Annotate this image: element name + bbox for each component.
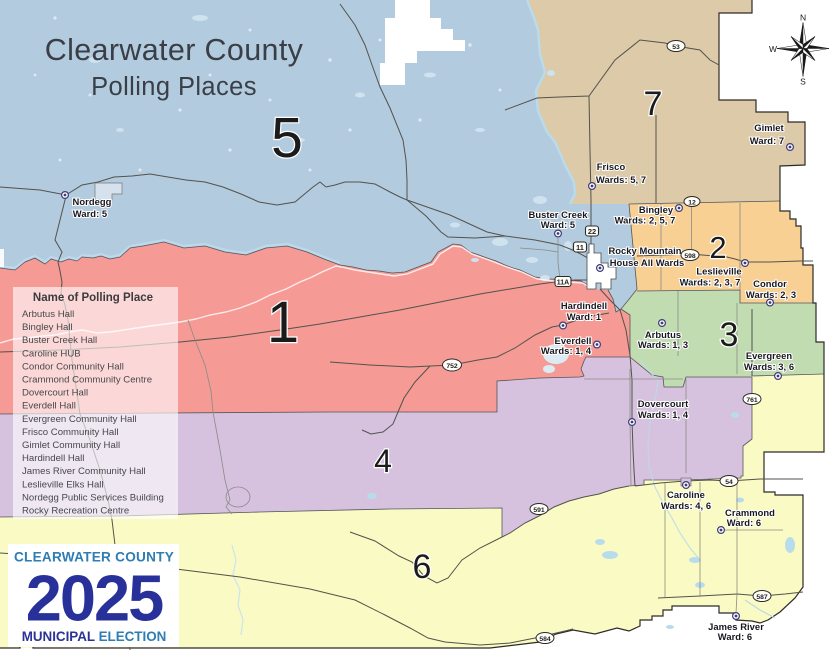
svg-text:11A: 11A: [557, 279, 569, 286]
svg-text:Nordegg: Nordegg: [73, 196, 112, 207]
svg-text:Wards: 2, 3: Wards: 2, 3: [746, 289, 796, 300]
svg-text:Leslieville Elks Hall: Leslieville Elks Hall: [22, 479, 104, 490]
svg-text:Gimlet: Gimlet: [754, 122, 783, 133]
svg-text:Ward: 6: Ward: 6: [718, 631, 752, 642]
svg-text:11: 11: [576, 243, 584, 252]
svg-text:Wards: 4, 6: Wards: 4, 6: [661, 500, 711, 511]
svg-text:22: 22: [588, 227, 596, 236]
svg-text:Evergreen Community Hall: Evergreen Community Hall: [22, 414, 137, 425]
svg-text:Frisco: Frisco: [597, 161, 626, 172]
svg-text:Wards: 1, 4: Wards: 1, 4: [638, 409, 689, 420]
svg-text:Bingley Hall: Bingley Hall: [22, 322, 73, 333]
svg-text:2025: 2025: [26, 562, 163, 635]
svg-text:Leslieville: Leslieville: [696, 266, 741, 277]
svg-text:7: 7: [644, 85, 663, 123]
svg-text:Ward: 1: Ward: 1: [567, 311, 601, 322]
svg-text:Caroline HUB: Caroline HUB: [22, 348, 81, 359]
svg-text:761: 761: [746, 397, 758, 404]
svg-text:5: 5: [271, 106, 303, 170]
svg-text:Wards: 5, 7: Wards: 5, 7: [596, 174, 646, 185]
svg-text:Hardindell Hall: Hardindell Hall: [22, 453, 84, 464]
svg-text:54: 54: [725, 479, 733, 486]
svg-text:James River Community Hall: James River Community Hall: [22, 466, 146, 477]
svg-text:12: 12: [688, 200, 696, 207]
svg-text:Buster Creek Hall: Buster Creek Hall: [22, 335, 97, 346]
svg-text:Hardindell: Hardindell: [561, 300, 607, 311]
svg-text:Wards: 1, 3: Wards: 1, 3: [638, 339, 688, 350]
svg-text:Ward: 6: Ward: 6: [727, 517, 761, 528]
svg-text:587: 587: [756, 594, 768, 601]
svg-text:Rocky Mountain: Rocky Mountain: [608, 245, 681, 256]
svg-text:Gimlet Community Hall: Gimlet Community Hall: [22, 440, 120, 451]
svg-text:N: N: [800, 13, 806, 23]
svg-text:Wards: 2, 3, 7: Wards: 2, 3, 7: [680, 277, 741, 288]
svg-text:W: W: [769, 44, 777, 54]
svg-text:Everdell Hall: Everdell Hall: [22, 401, 76, 412]
svg-text:Arbutus Hall: Arbutus Hall: [22, 309, 74, 320]
svg-text:Wards: 1, 4: Wards: 1, 4: [541, 345, 592, 356]
svg-text:Condor Community Hall: Condor Community Hall: [22, 361, 124, 372]
svg-text:Crammond Community Centre: Crammond Community Centre: [22, 375, 152, 386]
svg-text:Nordegg Public Services Buildi: Nordegg Public Services Building: [22, 492, 164, 503]
svg-text:Frisco Community Hall: Frisco Community Hall: [22, 427, 119, 438]
svg-text:584: 584: [539, 636, 551, 643]
svg-text:53: 53: [672, 44, 680, 51]
svg-text:Clearwater County: Clearwater County: [45, 33, 304, 67]
svg-text:3: 3: [720, 316, 739, 354]
svg-text:6: 6: [413, 548, 432, 586]
svg-text:Wards: 3, 6: Wards: 3, 6: [744, 361, 794, 372]
svg-text:Evergreen: Evergreen: [746, 350, 793, 361]
svg-text:752: 752: [446, 363, 458, 370]
svg-text:591: 591: [533, 507, 545, 514]
svg-text:Rocky Recreation Centre: Rocky Recreation Centre: [22, 506, 129, 517]
svg-text:598: 598: [684, 253, 696, 260]
svg-text:S: S: [800, 77, 806, 87]
svg-text:4: 4: [374, 443, 392, 479]
svg-text:1: 1: [267, 290, 299, 355]
svg-text:Caroline: Caroline: [667, 489, 705, 500]
svg-text:Condor: Condor: [753, 278, 787, 289]
svg-text:Wards: 2, 5, 7: Wards: 2, 5, 7: [615, 215, 676, 226]
svg-text:MUNICIPAL ELECTION: MUNICIPAL ELECTION: [22, 629, 167, 644]
svg-text:Bingley: Bingley: [639, 204, 674, 215]
svg-text:Ward: 5: Ward: 5: [541, 219, 575, 230]
svg-text:House All Wards: House All Wards: [610, 257, 685, 268]
svg-text:Dovercourt Hall: Dovercourt Hall: [22, 388, 88, 399]
svg-text:Name of Polling Place: Name of Polling Place: [33, 292, 153, 304]
svg-text:2: 2: [709, 230, 726, 265]
svg-text:Polling Places: Polling Places: [91, 73, 257, 101]
svg-text:Dovercourt: Dovercourt: [638, 398, 689, 409]
svg-text:Ward: 7: Ward: 7: [750, 135, 784, 146]
svg-text:Ward: 5: Ward: 5: [73, 208, 107, 219]
